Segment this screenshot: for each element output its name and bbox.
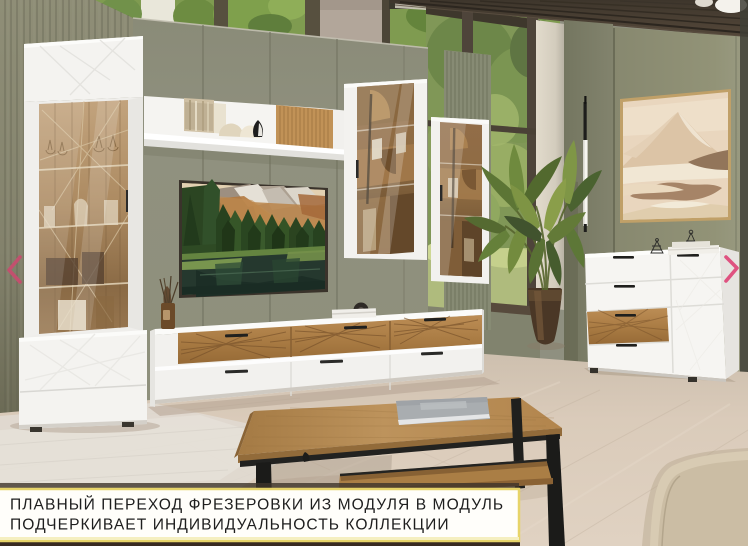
svg-text:ПЛАВНЫЙ ПЕРЕХОД ФРЕЗЕРОВКИ ИЗ: ПЛАВНЫЙ ПЕРЕХОД ФРЕЗЕРОВКИ ИЗ МОДУЛЯ В М… [10,495,504,514]
svg-text:ПОДЧЕРКИВАЕТ ИНДИВИДУАЛЬНОСТЬ: ПОДЧЕРКИВАЕТ ИНДИВИДУАЛЬНОСТЬ КОЛЛЕКЦИИ [10,517,450,534]
